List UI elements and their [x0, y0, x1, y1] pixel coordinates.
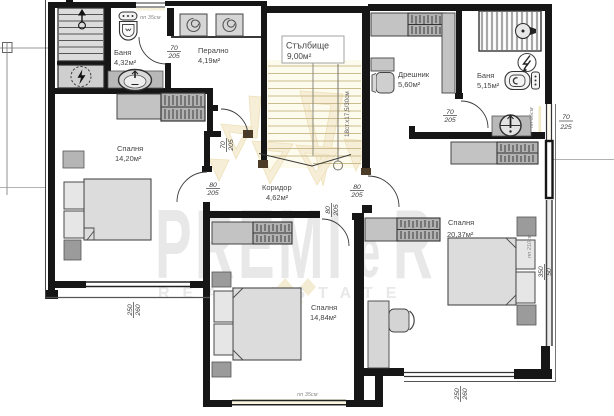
svg-text:205: 205 [228, 139, 235, 152]
svg-text:5,15м²: 5,15м² [477, 81, 500, 90]
svg-text:70: 70 [220, 141, 227, 149]
svg-text:250: 250 [454, 388, 461, 401]
svg-text:Коридор: Коридор [262, 183, 292, 192]
svg-text:205: 205 [350, 192, 363, 199]
svg-text:250: 250 [127, 304, 134, 317]
svg-text:50: 50 [546, 268, 553, 276]
svg-text:4,62м²: 4,62м² [266, 193, 289, 202]
svg-text:Спалня: Спалня [311, 303, 337, 312]
svg-text:14,20м²: 14,20м² [115, 154, 142, 163]
svg-text:4,19м²: 4,19м² [198, 56, 221, 65]
svg-text:205: 205 [443, 117, 456, 124]
svg-text:Спалня: Спалня [448, 218, 474, 227]
svg-text:9,00м²: 9,00м² [287, 52, 312, 61]
svg-text:4,32м²: 4,32м² [114, 58, 137, 67]
svg-text:260: 260 [135, 304, 142, 317]
svg-text:80: 80 [209, 182, 217, 189]
svg-text:Спалня: Спалня [117, 144, 143, 153]
svg-text:80: 80 [353, 184, 361, 191]
svg-text:80: 80 [325, 206, 332, 214]
svg-text:пп 210см: пп 210см [527, 234, 533, 258]
svg-text:пп 35см: пп 35см [297, 392, 318, 398]
svg-text:Стълбище: Стълбище [286, 41, 329, 51]
svg-text:14,84м²: 14,84м² [310, 313, 337, 322]
svg-text:пп 35см: пп 35см [140, 15, 161, 21]
svg-text:205: 205 [333, 204, 340, 217]
svg-text:Баня: Баня [114, 48, 131, 57]
svg-text:205: 205 [167, 53, 180, 60]
svg-text:225: 225 [559, 124, 572, 131]
svg-text:205: 205 [206, 190, 219, 197]
svg-text:18ст.х17,5/30см: 18ст.х17,5/30см [344, 91, 351, 137]
svg-text:70: 70 [446, 109, 454, 116]
svg-text:70: 70 [562, 114, 570, 121]
svg-text:70: 70 [170, 45, 178, 52]
svg-text:Баня: Баня [477, 71, 494, 80]
svg-text:пп 35см: пп 35см [529, 107, 535, 128]
svg-text:Перално: Перално [198, 46, 229, 55]
svg-text:260: 260 [462, 388, 469, 401]
svg-text:Дрешник: Дрешник [398, 70, 430, 79]
svg-text:5,60м²: 5,60м² [398, 80, 421, 89]
svg-text:350: 350 [538, 266, 545, 278]
